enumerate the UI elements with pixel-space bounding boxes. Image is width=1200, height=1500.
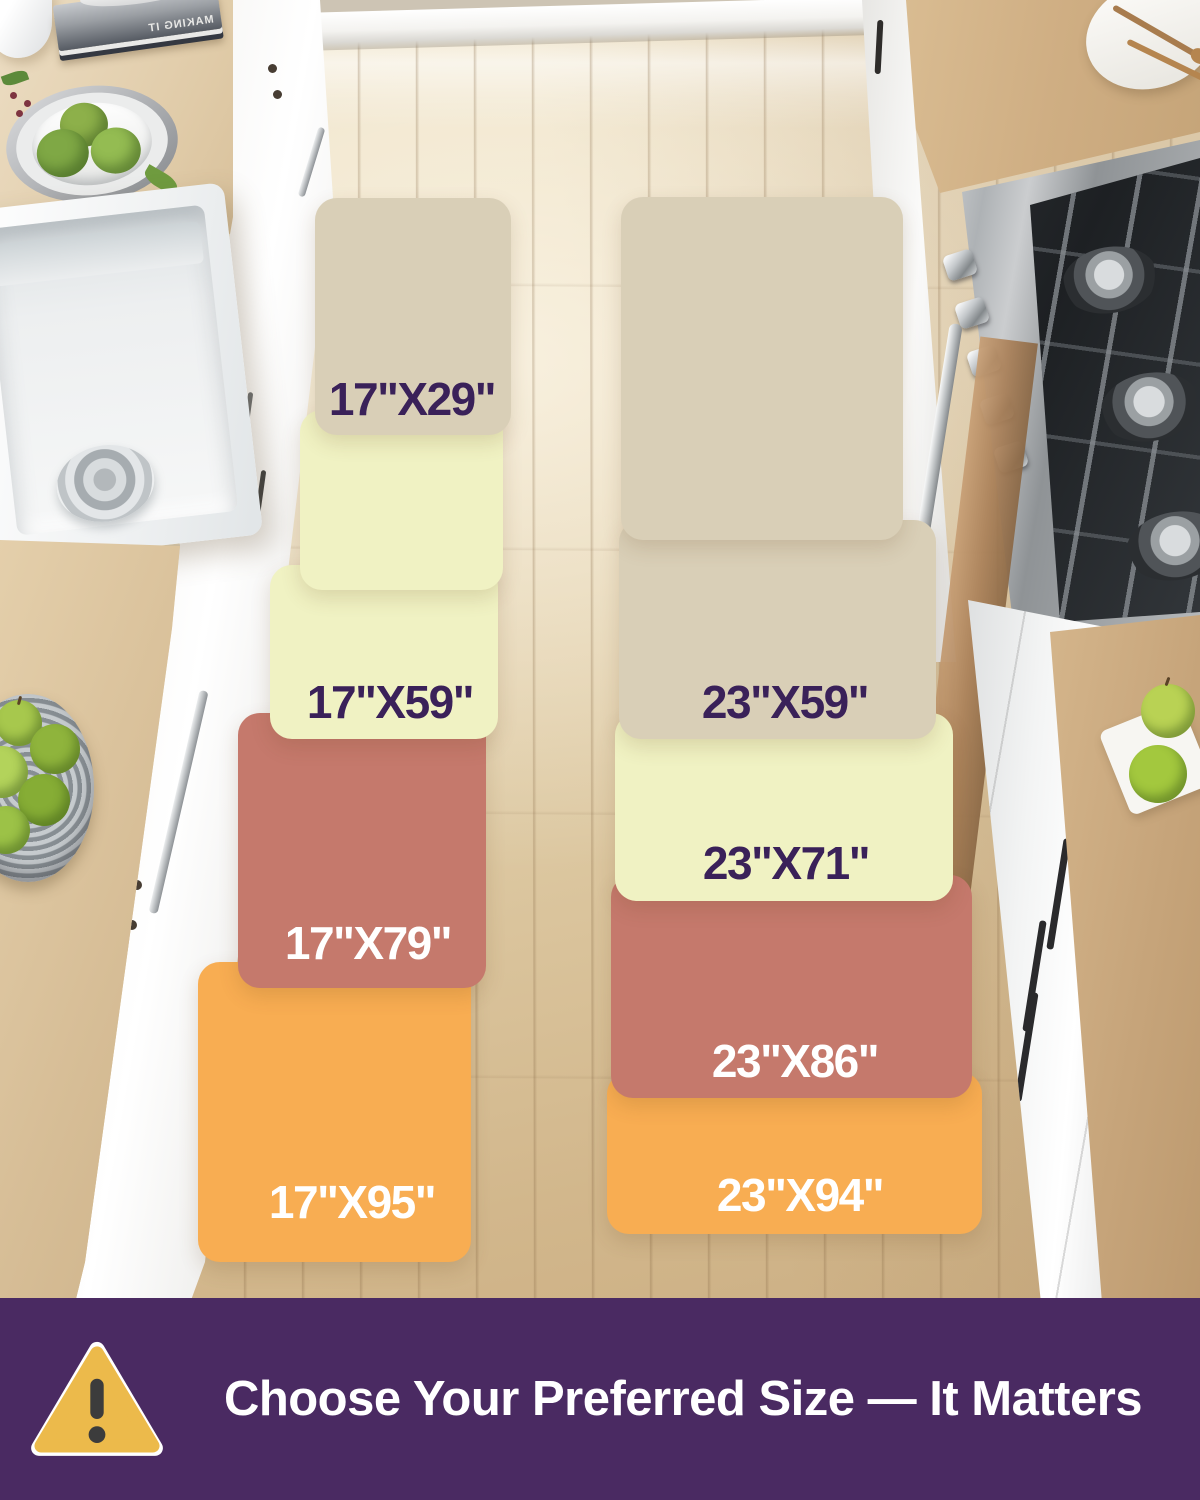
- runner-size-label: 17"X95": [269, 1175, 435, 1229]
- cabinet-knob: [273, 90, 282, 99]
- leaf: [1, 68, 30, 88]
- warning-triangle-icon: [30, 1338, 164, 1462]
- water-pitcher: [0, 0, 52, 58]
- runner-size-label: 17"X59": [307, 675, 473, 729]
- runner-size-label: 23"X94": [717, 1168, 883, 1222]
- small-plate: [79, 0, 201, 12]
- green-apple: [1141, 684, 1195, 738]
- exclamation-bar: [90, 1379, 103, 1419]
- farmhouse-sink: [0, 182, 263, 564]
- runner-size-label: 23"X59": [702, 675, 868, 729]
- cookbooks: MAKING IT: [53, 0, 223, 51]
- rug-size-infographic: MAKING IT: [0, 0, 1200, 1500]
- exclamation-dot: [89, 1426, 106, 1443]
- berry: [24, 100, 31, 107]
- runner-segment-23x59: [621, 197, 903, 540]
- berry: [10, 92, 17, 99]
- runner-segment-17x59: [300, 410, 503, 590]
- runner-size-label: 23"X71": [703, 836, 869, 890]
- cabinet-handle: [875, 20, 884, 74]
- berry: [16, 110, 23, 117]
- runner-size-label: 17"X79": [285, 916, 451, 970]
- cabinet-knob: [268, 64, 277, 73]
- runner-size-label: 23"X86": [712, 1034, 878, 1088]
- book-spine-label: MAKING IT: [146, 14, 213, 35]
- runner-size-label: 17"X29": [329, 372, 495, 426]
- apple-basket: [0, 694, 94, 882]
- green-apple: [1129, 745, 1187, 803]
- green-apple: [30, 724, 80, 774]
- banner-title: Choose Your Preferred Size — It Matters: [178, 1298, 1188, 1500]
- cabinet-handle: [298, 127, 326, 198]
